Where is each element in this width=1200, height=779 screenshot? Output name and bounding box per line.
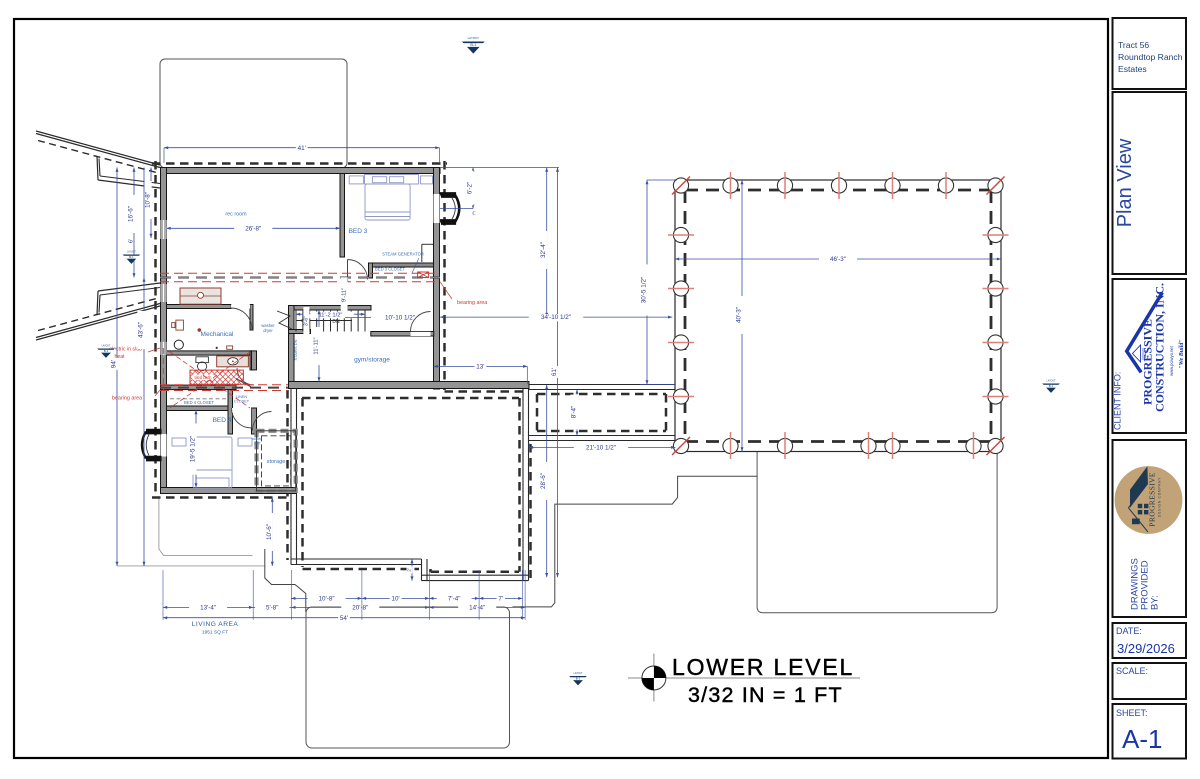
svg-text:3/32 IN = 1 FT: 3/32 IN = 1 FT (688, 683, 843, 707)
svg-text:3/29/2026: 3/29/2026 (1117, 641, 1175, 656)
svg-text:9'-11": 9'-11" (342, 288, 348, 302)
svg-text:13'-4": 13'-4" (200, 605, 216, 612)
svg-text:19'-5 1/2": 19'-5 1/2" (190, 436, 197, 463)
svg-text:gym/storage: gym/storage (354, 357, 390, 364)
svg-text:BED 3: BED 3 (349, 228, 368, 235)
svg-text:10'-8": 10'-8" (319, 596, 335, 603)
svg-text:5'-8": 5'-8" (266, 605, 279, 612)
svg-text:26'-8": 26'-8" (245, 225, 261, 232)
svg-text:B-1: B-1 (1049, 384, 1054, 388)
svg-text:LAYOUT: LAYOUT (127, 251, 136, 254)
svg-text:7': 7' (498, 596, 503, 603)
svg-text:7'-4": 7'-4" (448, 596, 461, 603)
svg-text:94': 94' (111, 360, 118, 368)
svg-text:DN: DN (332, 319, 340, 325)
svg-text:21'-10 1/2": 21'-10 1/2" (586, 445, 616, 452)
svg-text:61': 61' (551, 368, 558, 376)
svg-text:CLOSET: CLOSET (234, 400, 250, 404)
svg-text:"We Build": "We Build" (1179, 339, 1185, 368)
svg-text:20'-8": 20'-8" (352, 605, 368, 612)
svg-text:www.pciwyo.net: www.pciwyo.net (1169, 345, 1174, 376)
svg-text:30'-5 1/2": 30'-5 1/2" (641, 277, 648, 304)
svg-text:34'-10 1/2": 34'-10 1/2" (541, 314, 571, 321)
svg-text:28'-6": 28'-6" (540, 473, 547, 489)
svg-text:LAYOUT: LAYOUT (102, 345, 111, 348)
svg-text:3'-6": 3'-6" (304, 316, 310, 326)
svg-text:LAYOUT: LAYOUT (468, 36, 479, 40)
svg-text:43'-6": 43'-6" (138, 322, 145, 338)
svg-text:LINEN: LINEN (236, 395, 247, 399)
svg-text:bearing area: bearing area (457, 300, 487, 306)
svg-text:16'-6": 16'-6" (128, 206, 135, 222)
svg-text:B-1: B-1 (129, 255, 134, 259)
svg-text:SCALE:: SCALE: (1116, 666, 1148, 676)
svg-text:LOWER LEVEL: LOWER LEVEL (672, 654, 854, 680)
svg-text:PROGRESSIVE: PROGRESSIVE (1148, 472, 1157, 526)
svg-text:41': 41' (298, 145, 306, 152)
svg-text:6'-2": 6'-2" (467, 182, 474, 195)
svg-text:Tract 56: Tract 56 (1118, 40, 1149, 50)
svg-text:Plan View: Plan View (1114, 138, 1136, 227)
svg-text:32'-4": 32'-4" (540, 242, 547, 258)
svg-text:BED 3 CLOSET: BED 3 CLOSET (375, 267, 405, 272)
svg-text:Mechanical: Mechanical (201, 331, 234, 338)
svg-text:DATE:: DATE: (1116, 626, 1142, 636)
svg-text:13': 13' (476, 364, 484, 371)
svg-text:8'-4": 8'-4" (571, 406, 578, 419)
svg-text:Roundtop Ranch: Roundtop Ranch (1118, 52, 1183, 62)
svg-text:storage: storage (267, 459, 286, 465)
svg-text:STAIRS DN: STAIRS DN (293, 339, 298, 360)
svg-text:ℂ: ℂ (472, 211, 476, 217)
svg-text:dryer: dryer (263, 328, 273, 333)
svg-text:DESIGN COMPANY: DESIGN COMPANY (1158, 477, 1162, 517)
svg-text:B-1: B-1 (576, 677, 581, 681)
svg-text:10'-8": 10'-8" (145, 192, 152, 208)
svg-text:LAYOUT: LAYOUT (574, 672, 583, 675)
svg-text:B-1: B-1 (104, 349, 109, 353)
svg-text:Estates: Estates (1118, 64, 1147, 74)
svg-text:SHEET:: SHEET: (1116, 708, 1148, 718)
svg-text:10'-10 1/2": 10'-10 1/2" (385, 315, 415, 322)
svg-text:46'-3": 46'-3" (830, 256, 846, 263)
svg-text:water: water (252, 437, 262, 441)
svg-text:BED 4 CLOSET: BED 4 CLOSET (184, 400, 214, 405)
svg-text:B-1: B-1 (470, 43, 476, 47)
svg-text:11'-11": 11'-11" (314, 337, 320, 354)
svg-text:10'-6": 10'-6" (266, 524, 273, 540)
svg-text:6': 6' (129, 239, 135, 243)
svg-text:2': 2' (407, 568, 413, 572)
svg-text:BED 4: BED 4 (213, 417, 232, 424)
svg-text:rec room: rec room (225, 212, 247, 218)
svg-text:40'-3": 40'-3" (736, 307, 743, 323)
svg-text:14'-4": 14'-4" (469, 605, 485, 612)
svg-text:LIVING AREA: LIVING AREA (192, 621, 239, 628)
svg-text:STEAM GENERATOR: STEAM GENERATOR (382, 252, 424, 257)
svg-text:A-1: A-1 (1122, 724, 1162, 754)
svg-text:BY:: BY: (1150, 595, 1161, 610)
svg-text:CONSTRUCTION, INC.: CONSTRUCTION, INC. (1153, 283, 1167, 412)
svg-text:bearing area: bearing area (112, 396, 142, 402)
svg-text:soft: soft (254, 442, 261, 446)
svg-text:11'-2 1/2": 11'-2 1/2" (318, 312, 342, 318)
svg-text:10': 10' (391, 596, 399, 603)
svg-text:54': 54' (340, 615, 348, 622)
svg-text:CLIENT INFO:: CLIENT INFO: (1113, 372, 1123, 430)
svg-text:LAYOUT: LAYOUT (1047, 380, 1056, 383)
svg-text:1951 SQ FT: 1951 SQ FT (202, 630, 228, 636)
